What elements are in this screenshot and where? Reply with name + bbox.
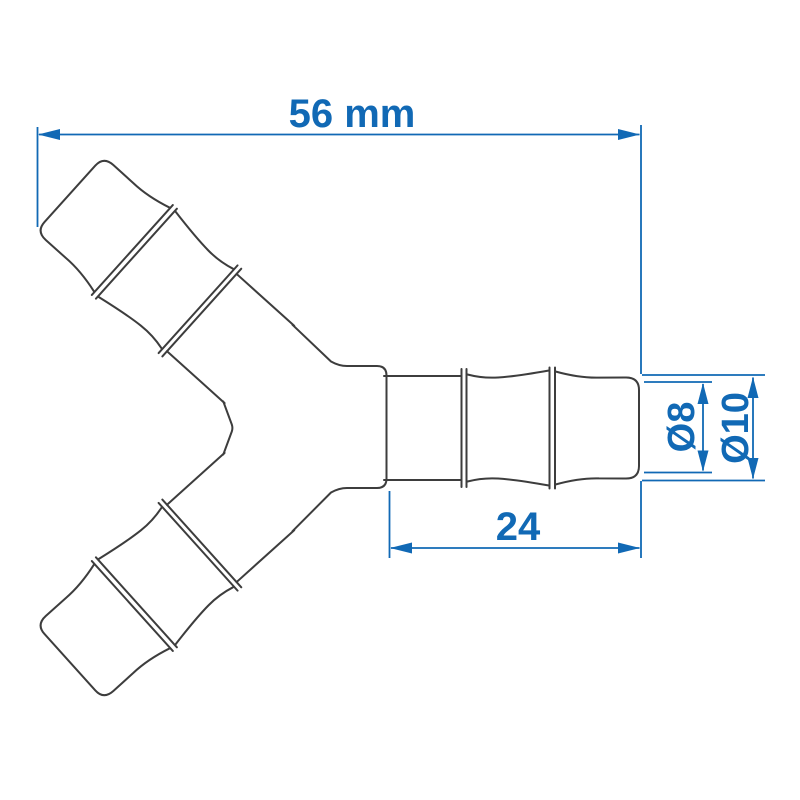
branch-upper-left <box>29 149 299 410</box>
dim-inner-diameter-label: Ø8 <box>661 402 703 453</box>
branch-right <box>384 368 639 489</box>
technical-drawing-canvas: 56 mm 24 Ø8 Ø10 <box>0 0 800 800</box>
arrow-24-left <box>390 543 412 554</box>
dim-branch-length-label: 24 <box>496 505 541 549</box>
arrow-24-right <box>618 543 640 554</box>
dim-outer-diameter-label: Ø10 <box>715 392 757 464</box>
center-body <box>293 325 387 531</box>
arrow-56-left <box>38 129 60 140</box>
center-notch <box>223 402 232 455</box>
arrow-56-right <box>618 129 640 140</box>
dim-overall-width-label: 56 mm <box>289 92 416 136</box>
arrow-d8-down <box>698 451 709 472</box>
branch-lower-left <box>29 447 299 708</box>
y-connector-drawing: 56 mm 24 Ø8 Ø10 <box>0 0 800 800</box>
dimension-lines <box>38 125 766 558</box>
arrow-d8-up <box>698 383 709 404</box>
y-connector-outline <box>29 149 639 707</box>
